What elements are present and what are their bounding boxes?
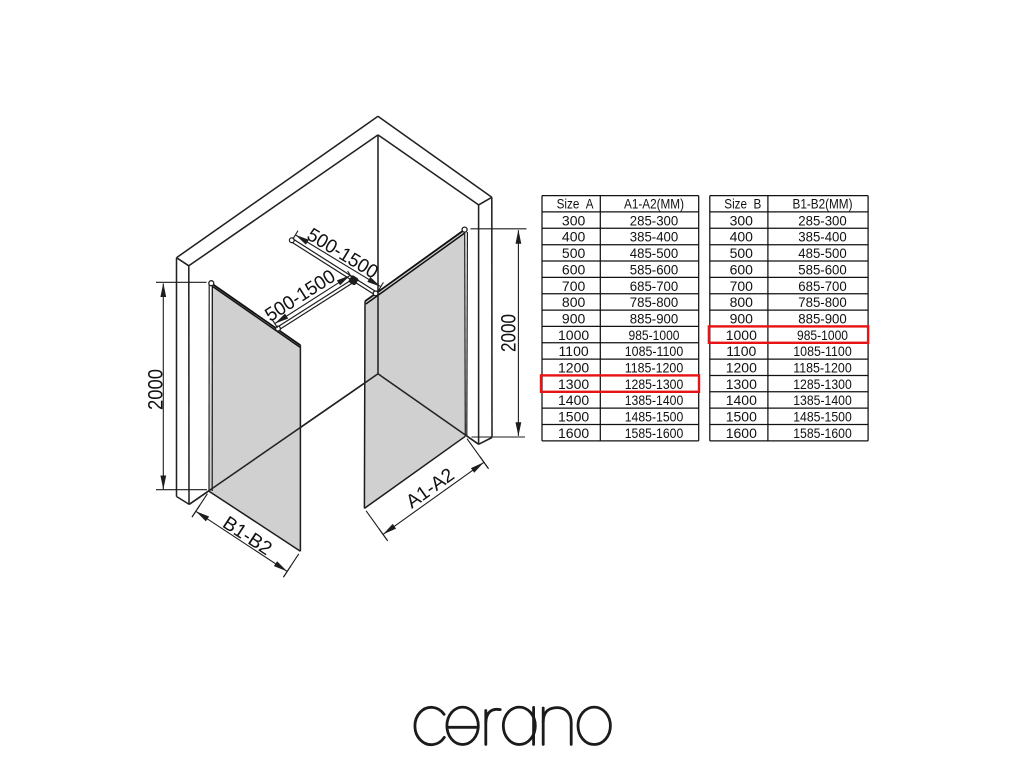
svg-text:300: 300	[730, 212, 754, 228]
svg-text:385-400: 385-400	[798, 230, 847, 245]
svg-text:985-1000: 985-1000	[797, 328, 848, 343]
svg-text:585-600: 585-600	[798, 262, 847, 277]
svg-text:785-800: 785-800	[798, 295, 847, 310]
svg-text:500: 500	[730, 245, 754, 261]
svg-text:285-300: 285-300	[798, 213, 847, 228]
svg-text:885-900: 885-900	[630, 311, 679, 326]
svg-text:1285-1300: 1285-1300	[625, 377, 684, 392]
svg-text:1400: 1400	[558, 392, 589, 408]
svg-text:1085-1100: 1085-1100	[793, 344, 852, 359]
svg-text:1385-1400: 1385-1400	[625, 393, 684, 408]
svg-text:1400: 1400	[726, 392, 757, 408]
svg-text:900: 900	[562, 310, 586, 326]
svg-text:2000: 2000	[496, 314, 520, 352]
svg-text:685-700: 685-700	[798, 279, 847, 294]
svg-text:1500: 1500	[558, 409, 589, 425]
svg-text:1585-1600: 1585-1600	[625, 426, 684, 441]
svg-text:1500: 1500	[726, 409, 757, 425]
svg-text:700: 700	[562, 278, 586, 294]
svg-text:285-300: 285-300	[630, 213, 679, 228]
svg-text:1185-1200: 1185-1200	[625, 361, 684, 376]
svg-text:2000: 2000	[143, 369, 167, 410]
svg-text:1600: 1600	[558, 425, 589, 441]
svg-text:585-600: 585-600	[630, 262, 679, 277]
svg-text:1100: 1100	[559, 343, 589, 359]
svg-text:1000: 1000	[558, 327, 589, 343]
svg-text:385-400: 385-400	[630, 230, 679, 245]
svg-text:1085-1100: 1085-1100	[625, 344, 684, 359]
svg-text:1485-1500: 1485-1500	[625, 410, 684, 425]
svg-text:1300: 1300	[558, 376, 589, 392]
svg-text:685-700: 685-700	[630, 279, 679, 294]
svg-text:800: 800	[730, 294, 754, 310]
svg-text:1100: 1100	[726, 343, 756, 359]
svg-text:600: 600	[730, 261, 754, 277]
svg-text:1185-1200: 1185-1200	[793, 361, 852, 376]
svg-text:Size A: Size A	[557, 196, 595, 212]
svg-text:1285-1300: 1285-1300	[793, 377, 852, 392]
svg-text:885-900: 885-900	[798, 311, 847, 326]
svg-text:500: 500	[562, 245, 586, 261]
svg-text:1000: 1000	[726, 327, 757, 343]
svg-text:400: 400	[730, 229, 754, 245]
svg-text:Size B: Size B	[724, 196, 761, 212]
svg-text:700: 700	[730, 278, 754, 294]
svg-text:800: 800	[562, 294, 586, 310]
svg-text:485-500: 485-500	[798, 246, 847, 261]
svg-text:1200: 1200	[726, 360, 757, 376]
svg-text:1300: 1300	[726, 376, 757, 392]
svg-text:900: 900	[730, 310, 754, 326]
svg-text:1485-1500: 1485-1500	[793, 410, 852, 425]
svg-text:300: 300	[562, 212, 586, 228]
svg-text:B1-B2(MM): B1-B2(MM)	[793, 196, 853, 212]
svg-text:600: 600	[562, 261, 586, 277]
svg-text:1385-1400: 1385-1400	[793, 393, 852, 408]
svg-text:A1-A2(MM): A1-A2(MM)	[624, 196, 684, 212]
svg-text:400: 400	[562, 229, 586, 245]
svg-text:985-1000: 985-1000	[629, 328, 680, 343]
svg-text:1200: 1200	[558, 360, 589, 376]
svg-text:1600: 1600	[726, 425, 757, 441]
svg-text:785-800: 785-800	[630, 295, 679, 310]
svg-text:485-500: 485-500	[630, 246, 679, 261]
svg-text:1585-1600: 1585-1600	[793, 426, 852, 441]
